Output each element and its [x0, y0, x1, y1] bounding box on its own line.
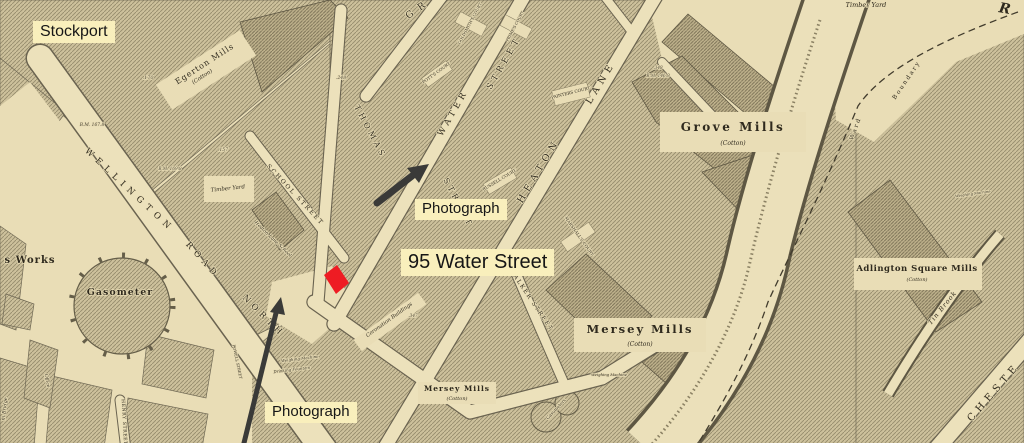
label-spot-height-170: .170	[142, 75, 154, 81]
historic-map: WELLINGTON ROAD NORTH THOMAS STREET WATE…	[0, 0, 1024, 443]
label-gas-works: s Works	[4, 255, 55, 266]
label-spot-height-348: .348	[653, 65, 663, 70]
95-water-street-label: 95 Water Street	[401, 249, 554, 276]
label-gasometer: Gasometer	[87, 287, 154, 298]
label-mersey-mills-small: Mersey Mills	[424, 384, 490, 393]
label-spot-height-157: .157	[218, 147, 228, 153]
label-benchmark-169: B.M. 169.8	[157, 166, 182, 171]
label-spot-height-347: .347	[408, 313, 418, 318]
label-mersey-cotton: (Cotton)	[627, 341, 653, 348]
map-screenshot: WELLINGTON ROAD NORTH THOMAS STREET WATE…	[0, 0, 1024, 443]
label-adlington-cotton: (Cotton)	[907, 276, 928, 283]
label-timber-yard: Timber Yard	[846, 1, 887, 9]
label-grove-mills: Grove Mills	[681, 120, 786, 134]
label-benchmark-146: B.M. 146.9	[645, 73, 670, 78]
label-spot-height-248: .248	[336, 75, 346, 81]
photograph-label-top: Photograph	[415, 199, 507, 220]
photograph-label-bottom: Photograph	[265, 402, 357, 423]
label-adlington-mills: Adlington Square Mills	[855, 264, 977, 274]
label-mersey-mills: Mersey Mills	[587, 322, 694, 336]
label-benchmark-167: B.M. 167.8	[79, 123, 105, 128]
label-grove-cotton: (Cotton)	[720, 140, 746, 147]
label-mersey-cotton-small: (Cotton)	[447, 395, 468, 402]
stockport-title-label: Stockport	[33, 21, 115, 43]
label-weighing-machine-2: Weighing Machine	[591, 372, 628, 377]
